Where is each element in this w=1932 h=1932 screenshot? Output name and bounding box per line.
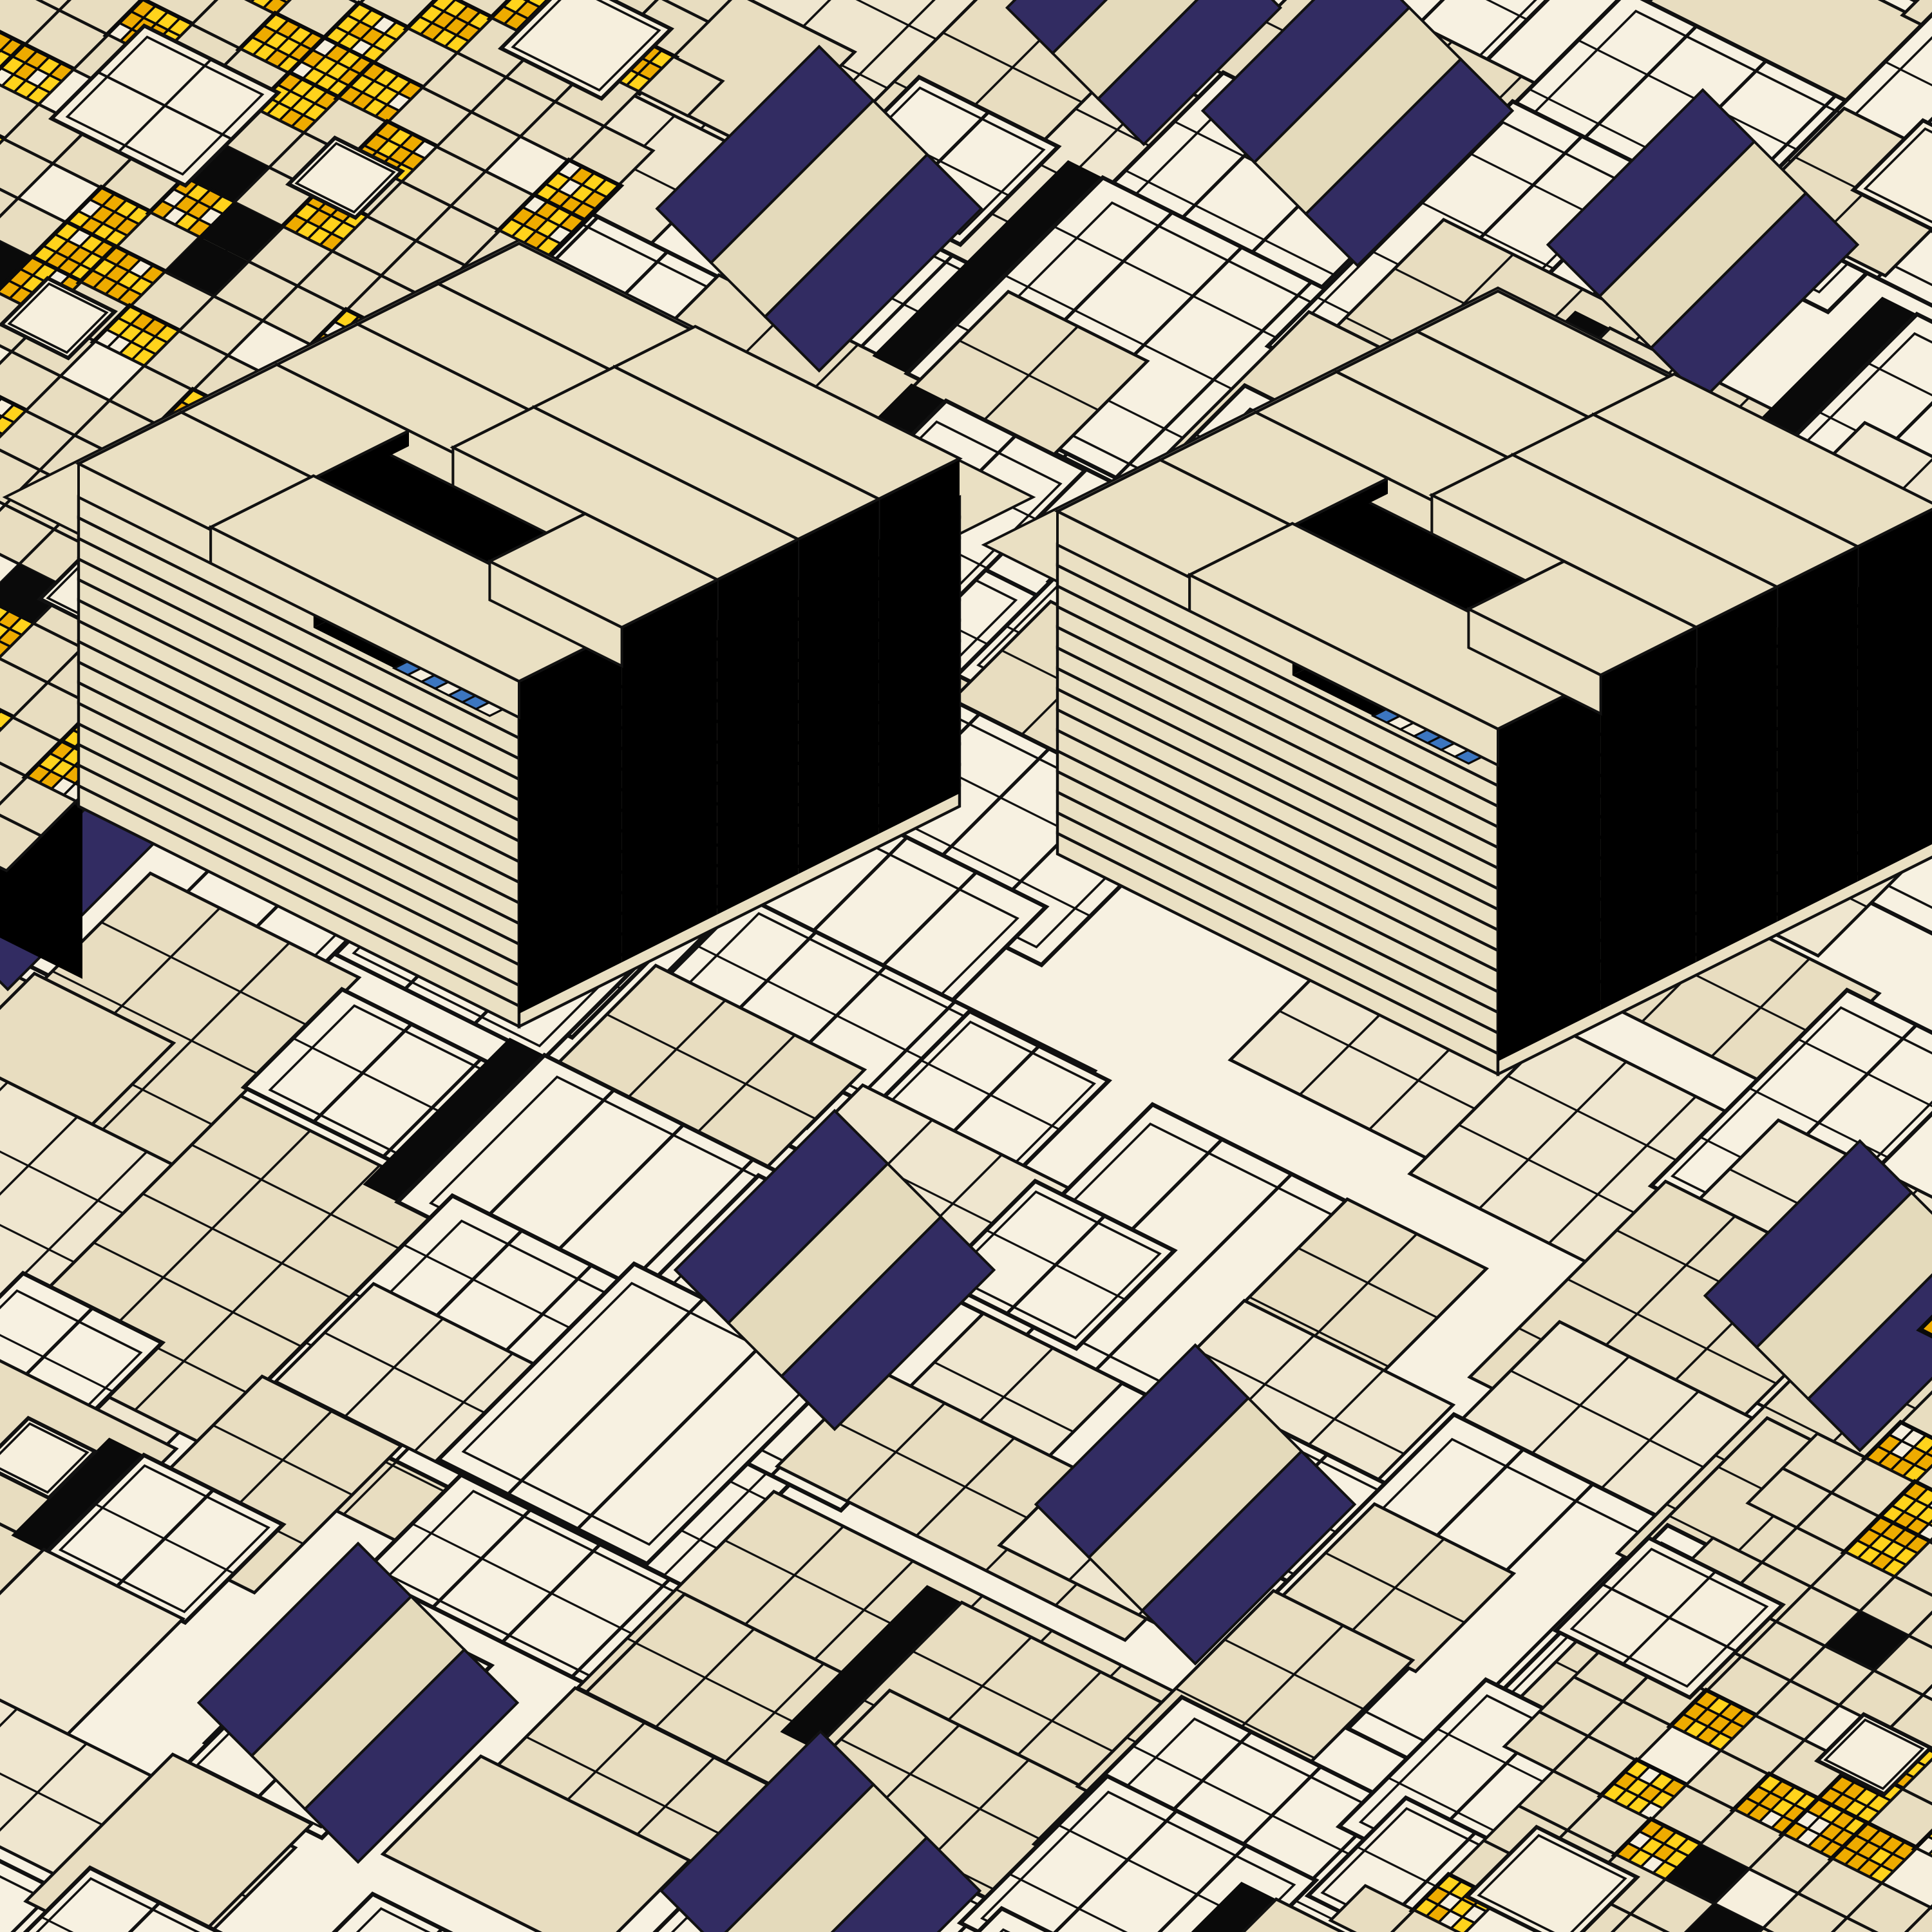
- shape: [1858, 506, 1932, 882]
- shape: [1777, 547, 1857, 922]
- shape: [798, 499, 878, 875]
- generative-artwork-canvas: Isometric generative block-city artwork: [0, 0, 1932, 1932]
- artwork-stage: Isometric generative block-city artwork: [0, 0, 1932, 1932]
- shape: [622, 580, 717, 962]
- shape: [519, 630, 622, 1014]
- shape: [879, 459, 960, 834]
- shape: [1498, 677, 1601, 1061]
- shape: [1601, 627, 1696, 1010]
- shape: [717, 539, 798, 914]
- shape: [1696, 587, 1777, 962]
